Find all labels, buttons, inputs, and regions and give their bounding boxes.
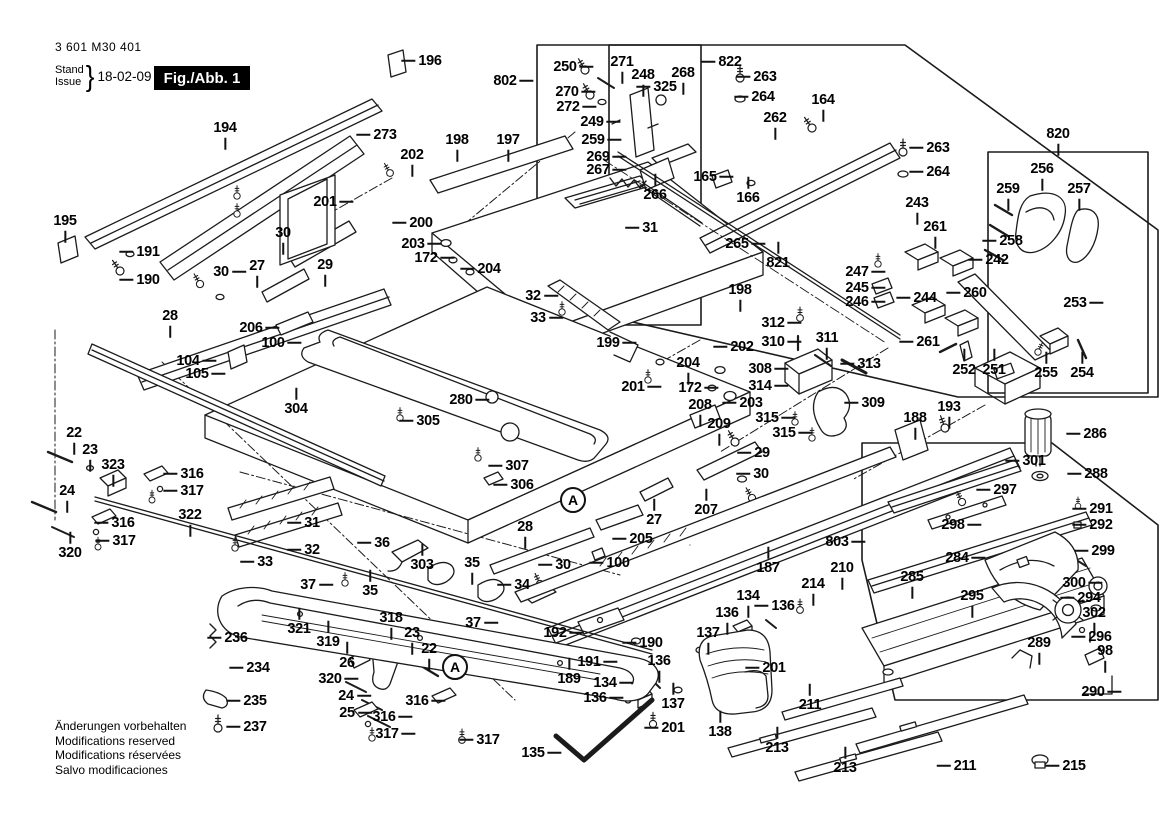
- part-callout-317: 317: [375, 727, 398, 742]
- part-callout-803: 803: [825, 535, 848, 550]
- part-callout-196: 196: [418, 54, 441, 69]
- part-callout-27: 27: [249, 259, 265, 274]
- part-callout-288: 288: [1084, 467, 1107, 482]
- part-callout-325: 325: [653, 80, 676, 95]
- part-callout-294: 294: [1077, 591, 1100, 606]
- part-callout-136: 136: [583, 691, 606, 706]
- part-callout-260: 260: [963, 286, 986, 301]
- part-callout-208: 208: [688, 398, 711, 413]
- part-callout-273: 273: [373, 128, 396, 143]
- part-callout-307: 307: [505, 459, 528, 474]
- part-callout-192: 192: [543, 626, 566, 641]
- part-callout-23: 23: [404, 626, 420, 641]
- part-callout-311: 311: [816, 331, 839, 346]
- part-callout-264: 264: [751, 90, 774, 105]
- part-callout-321: 321: [287, 622, 310, 637]
- part-callout-302: 302: [1082, 606, 1105, 621]
- part-callout-187: 187: [756, 561, 779, 576]
- part-callout-263: 263: [753, 70, 776, 85]
- part-callout-204: 204: [676, 356, 699, 371]
- part-callout-29: 29: [317, 258, 333, 273]
- part-callout-193: 193: [937, 400, 960, 415]
- part-callout-203: 203: [739, 396, 762, 411]
- part-callout-820: 820: [1046, 127, 1069, 142]
- part-callout-137: 137: [696, 626, 719, 641]
- part-callout-213: 213: [833, 761, 856, 776]
- part-callout-210: 210: [830, 561, 853, 576]
- part-callout-211: 211: [799, 698, 822, 713]
- part-callout-135: 135: [521, 746, 544, 761]
- part-callout-318: 318: [379, 611, 402, 626]
- part-callout-211: 211: [954, 759, 977, 774]
- part-callout-301: 301: [1022, 454, 1045, 469]
- part-callout-202: 202: [730, 340, 753, 355]
- part-callout-33: 33: [257, 555, 273, 570]
- part-callout-308: 308: [748, 362, 771, 377]
- part-callout-22: 22: [421, 642, 437, 657]
- part-callout-264: 264: [926, 165, 949, 180]
- part-callout-249: 249: [580, 115, 603, 130]
- part-callout-306: 306: [510, 478, 533, 493]
- part-callout-244: 244: [913, 291, 936, 306]
- part-callout-289: 289: [1027, 636, 1050, 651]
- part-callout-100: 100: [606, 556, 629, 571]
- part-callout-246: 246: [845, 295, 868, 310]
- part-callout-258: 258: [999, 234, 1022, 249]
- part-callout-200: 200: [409, 216, 432, 231]
- part-callout-105: 105: [185, 367, 208, 382]
- part-callout-134: 134: [736, 589, 759, 604]
- part-callout-136: 136: [647, 654, 670, 669]
- part-callout-37: 37: [300, 578, 316, 593]
- part-callout-189: 189: [557, 672, 580, 687]
- part-callout-261: 261: [916, 335, 939, 350]
- part-callout-30: 30: [555, 558, 571, 573]
- part-callout-235: 235: [243, 694, 266, 709]
- part-callout-316: 316: [111, 516, 134, 531]
- part-callout-188: 188: [903, 411, 926, 426]
- part-callout-802: 802: [493, 74, 516, 89]
- part-callout-24: 24: [59, 484, 75, 499]
- part-callout-255: 255: [1034, 366, 1057, 381]
- part-callout-243: 243: [905, 196, 928, 211]
- part-callout-209: 209: [707, 417, 730, 432]
- part-callout-199: 199: [596, 336, 619, 351]
- part-callout-323: 323: [101, 458, 124, 473]
- part-callout-214: 214: [801, 577, 824, 592]
- part-callout-194: 194: [213, 121, 236, 136]
- part-callout-34: 34: [514, 578, 530, 593]
- part-callout-98: 98: [1097, 644, 1113, 659]
- parts-diagram-page: 3 601 M30 401 Stand Issue } 18-02-09 Fig…: [0, 0, 1166, 824]
- part-callout-202: 202: [400, 148, 423, 163]
- part-callout-22: 22: [66, 426, 82, 441]
- part-callout-290: 290: [1081, 685, 1104, 700]
- part-callout-248: 248: [631, 68, 654, 83]
- part-callout-242: 242: [985, 253, 1008, 268]
- footer-notice: Änderungen vorbehaltenModifications rese…: [55, 719, 186, 777]
- part-callout-259: 259: [996, 182, 1019, 197]
- part-callout-25: 25: [339, 706, 355, 721]
- footer-line: Modifications reserved: [55, 734, 186, 749]
- detail-marker-A: A: [442, 654, 468, 680]
- part-callout-32: 32: [525, 289, 541, 304]
- part-callout-36: 36: [374, 536, 390, 551]
- catalog-number: 3 601 M30 401: [55, 40, 151, 54]
- part-callout-271: 271: [610, 55, 633, 70]
- figure-label-box: Fig./Abb. 1: [154, 66, 250, 90]
- part-callout-234: 234: [246, 661, 269, 676]
- part-callout-317: 317: [476, 733, 499, 748]
- part-callout-297: 297: [993, 483, 1016, 498]
- part-callout-30: 30: [275, 226, 291, 241]
- part-callout-285: 285: [900, 570, 923, 585]
- part-callout-316: 316: [180, 467, 203, 482]
- part-callout-317: 317: [112, 534, 135, 549]
- footer-line: Änderungen vorbehalten: [55, 719, 186, 734]
- part-callout-270: 270: [555, 85, 578, 100]
- part-callout-254: 254: [1070, 366, 1093, 381]
- part-callout-252: 252: [952, 363, 975, 378]
- part-callout-164: 164: [811, 93, 834, 108]
- part-callout-266: 266: [643, 188, 666, 203]
- part-callout-261: 261: [923, 220, 946, 235]
- part-callout-166: 166: [736, 191, 759, 206]
- part-callout-165: 165: [693, 170, 716, 185]
- part-callout-207: 207: [694, 503, 717, 518]
- part-callout-30: 30: [753, 467, 769, 482]
- part-callout-201: 201: [762, 661, 785, 676]
- part-callout-304: 304: [284, 402, 307, 417]
- issue-date: 18-02-09: [97, 69, 151, 84]
- part-callout-821: 821: [766, 256, 789, 271]
- part-callout-204: 204: [477, 262, 500, 277]
- part-callout-213: 213: [765, 741, 788, 756]
- callout-layer: 1941951911902731962021981972013020020317…: [0, 0, 1166, 824]
- part-callout-206: 206: [239, 321, 262, 336]
- part-callout-27: 27: [646, 513, 662, 528]
- part-callout-312: 312: [761, 316, 784, 331]
- stand-issue-labels: Stand Issue: [55, 65, 84, 88]
- part-callout-24: 24: [338, 689, 354, 704]
- part-callout-172: 172: [678, 381, 701, 396]
- part-callout-299: 299: [1091, 544, 1114, 559]
- part-callout-236: 236: [224, 631, 247, 646]
- part-callout-298: 298: [941, 518, 964, 533]
- part-callout-138: 138: [708, 725, 731, 740]
- part-callout-198: 198: [728, 283, 751, 298]
- part-callout-32: 32: [304, 543, 320, 558]
- part-callout-29: 29: [754, 446, 770, 461]
- part-callout-319: 319: [316, 635, 339, 650]
- part-callout-134: 134: [593, 676, 616, 691]
- part-callout-291: 291: [1089, 502, 1112, 517]
- part-callout-172: 172: [414, 251, 437, 266]
- issue-row: Stand Issue } 18-02-09: [55, 61, 151, 92]
- part-callout-303: 303: [410, 558, 433, 573]
- part-callout-201: 201: [621, 380, 644, 395]
- part-callout-237: 237: [243, 720, 266, 735]
- part-callout-295: 295: [960, 589, 983, 604]
- part-callout-195: 195: [53, 214, 76, 229]
- part-callout-259: 259: [581, 133, 604, 148]
- part-callout-320: 320: [318, 672, 341, 687]
- footer-line: Modifications réservées: [55, 748, 186, 763]
- part-callout-300: 300: [1062, 576, 1085, 591]
- part-callout-262: 262: [763, 111, 786, 126]
- part-callout-315: 315: [772, 426, 795, 441]
- part-callout-198: 198: [445, 133, 468, 148]
- part-callout-191: 191: [577, 655, 600, 670]
- part-callout-28: 28: [162, 309, 178, 324]
- part-callout-201: 201: [661, 721, 684, 736]
- part-callout-322: 322: [178, 508, 201, 523]
- part-callout-23: 23: [82, 443, 98, 458]
- part-callout-280: 280: [449, 393, 472, 408]
- part-callout-822: 822: [718, 55, 741, 70]
- part-callout-31: 31: [304, 516, 320, 531]
- part-callout-37: 37: [465, 616, 481, 631]
- part-callout-35: 35: [464, 556, 480, 571]
- part-callout-100: 100: [261, 336, 284, 351]
- part-callout-31: 31: [642, 221, 658, 236]
- part-callout-137: 137: [661, 697, 684, 712]
- part-callout-26: 26: [339, 656, 355, 671]
- part-callout-136: 136: [771, 599, 794, 614]
- part-callout-256: 256: [1030, 162, 1053, 177]
- part-callout-257: 257: [1067, 182, 1090, 197]
- part-callout-313: 313: [857, 357, 880, 372]
- part-callout-253: 253: [1063, 296, 1086, 311]
- part-callout-205: 205: [629, 532, 652, 547]
- part-callout-309: 309: [861, 396, 884, 411]
- part-callout-28: 28: [517, 520, 533, 535]
- part-callout-190: 190: [136, 273, 159, 288]
- part-callout-201: 201: [313, 195, 336, 210]
- detail-marker-A: A: [560, 487, 586, 513]
- part-callout-316: 316: [405, 694, 428, 709]
- part-callout-251: 251: [982, 363, 1005, 378]
- part-callout-136: 136: [715, 606, 738, 621]
- part-callout-33: 33: [530, 311, 546, 326]
- part-callout-263: 263: [926, 141, 949, 156]
- part-callout-267: 267: [586, 163, 609, 178]
- part-callout-305: 305: [416, 414, 439, 429]
- part-callout-284: 284: [945, 551, 968, 566]
- part-callout-30: 30: [213, 265, 229, 280]
- part-callout-317: 317: [180, 484, 203, 499]
- part-callout-315: 315: [755, 411, 778, 426]
- part-callout-320: 320: [58, 546, 81, 561]
- part-callout-250: 250: [553, 60, 576, 75]
- part-callout-316: 316: [372, 710, 395, 725]
- part-callout-35: 35: [362, 584, 378, 599]
- brace-glyph: }: [86, 59, 95, 93]
- part-callout-314: 314: [748, 379, 771, 394]
- part-callout-292: 292: [1089, 518, 1112, 533]
- part-callout-265: 265: [725, 237, 748, 252]
- part-callout-215: 215: [1062, 759, 1085, 774]
- footer-line: Salvo modificaciones: [55, 763, 186, 778]
- part-callout-197: 197: [496, 133, 519, 148]
- part-callout-191: 191: [136, 245, 159, 260]
- part-callout-310: 310: [761, 335, 784, 350]
- part-callout-190: 190: [639, 636, 662, 651]
- part-callout-286: 286: [1083, 427, 1106, 442]
- header-block: 3 601 M30 401 Stand Issue } 18-02-09: [55, 40, 151, 92]
- part-callout-272: 272: [556, 100, 579, 115]
- part-callout-247: 247: [845, 265, 868, 280]
